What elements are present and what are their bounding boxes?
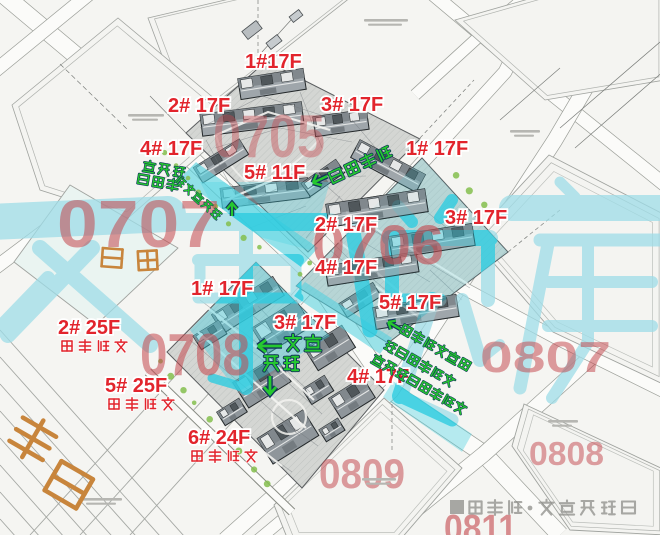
svg-text:6# 24F: 6# 24F: [188, 427, 250, 449]
svg-text:3# 17F: 3# 17F: [321, 94, 383, 116]
svg-text:1# 17F: 1# 17F: [191, 278, 253, 300]
svg-text:3# 17F: 3# 17F: [274, 312, 336, 334]
svg-text:0809: 0809: [319, 450, 405, 497]
svg-text:3# 17F: 3# 17F: [445, 207, 507, 229]
svg-text:0807: 0807: [480, 333, 611, 382]
svg-text:2# 25F: 2# 25F: [58, 317, 120, 339]
svg-text:4# 17F: 4# 17F: [315, 257, 377, 279]
svg-text:2# 17F: 2# 17F: [315, 214, 377, 236]
svg-text:1#17F: 1#17F: [245, 51, 302, 73]
svg-text:4# 17F: 4# 17F: [140, 138, 202, 160]
svg-text:0808: 0808: [529, 435, 604, 472]
svg-text:5# 17F: 5# 17F: [379, 292, 441, 314]
svg-text:5# 11F: 5# 11F: [244, 162, 305, 184]
svg-text:5# 25F: 5# 25F: [105, 375, 167, 397]
svg-text:2# 17F: 2# 17F: [168, 95, 230, 117]
svg-text:1# 17F: 1# 17F: [406, 138, 468, 160]
